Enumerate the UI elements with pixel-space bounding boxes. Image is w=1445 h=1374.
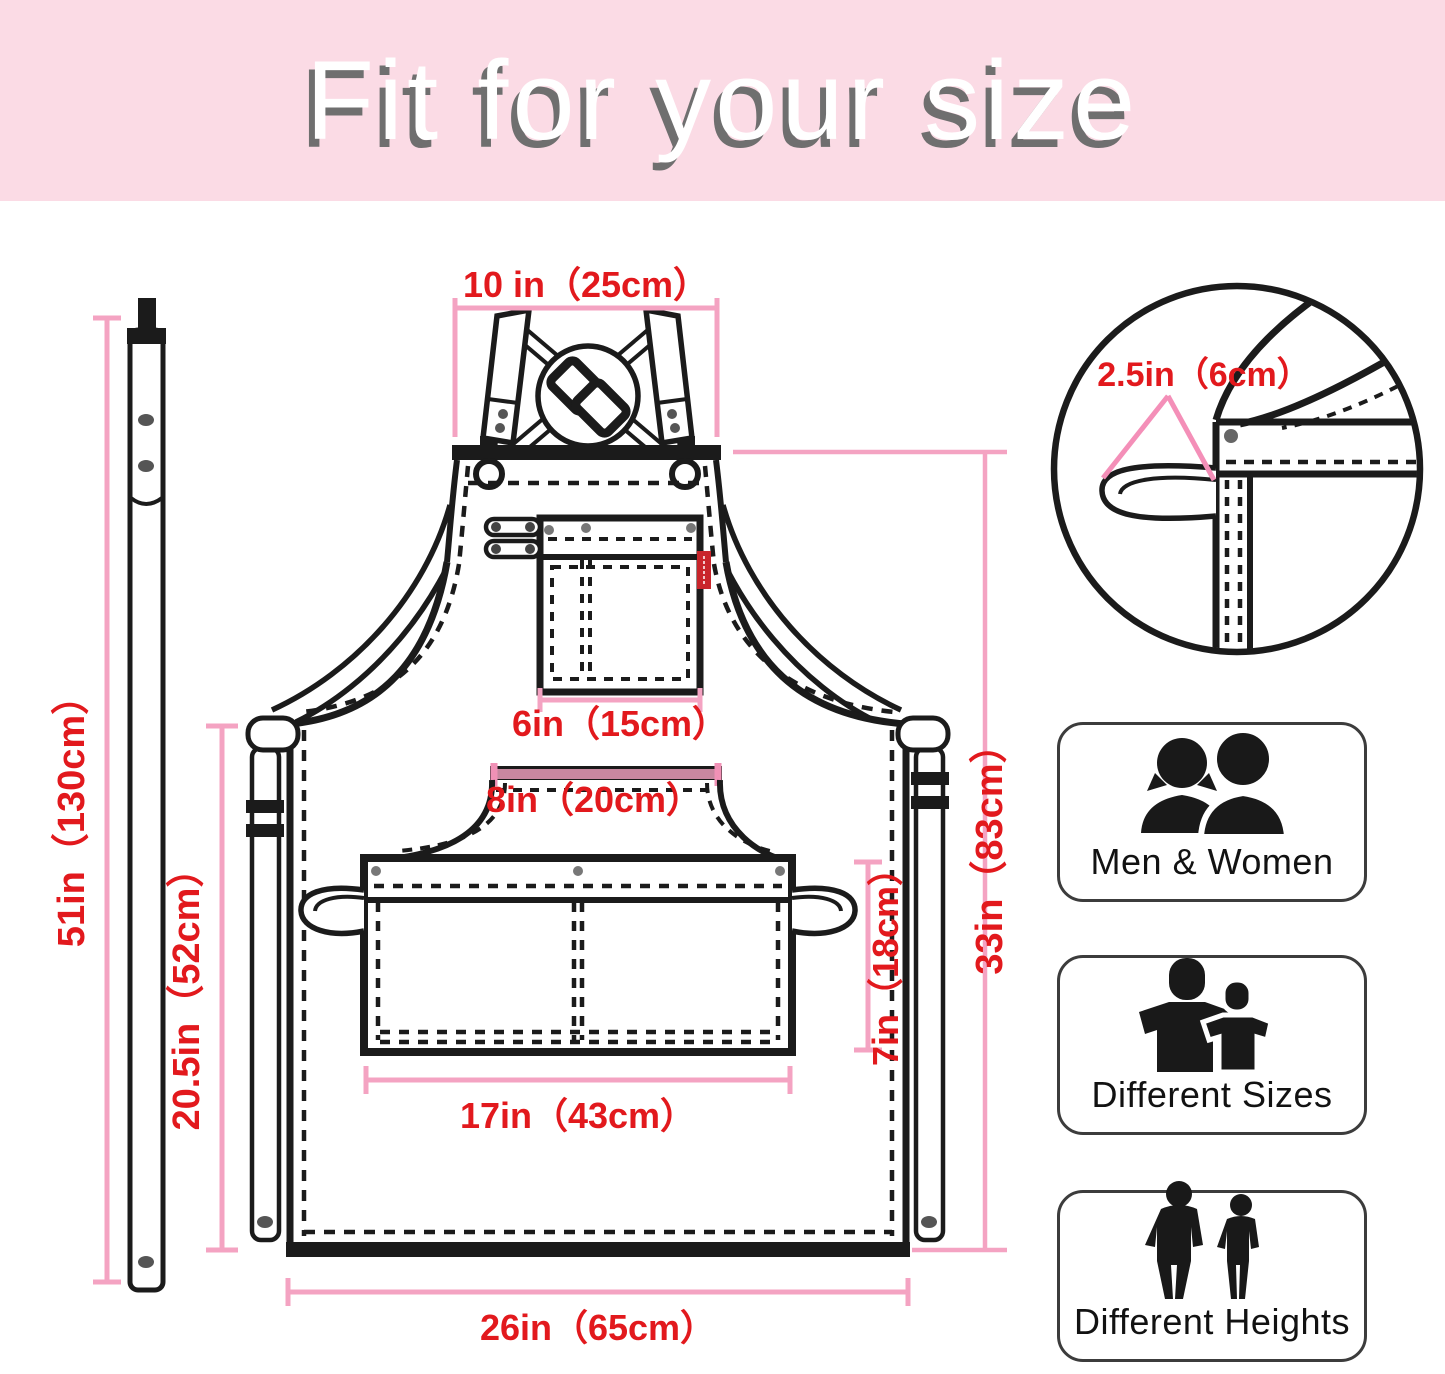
dim-label-chest-pocket-width: 6in（15cm）	[512, 703, 728, 744]
different-heights-icon	[1117, 1171, 1307, 1301]
men-women-icon	[1117, 719, 1307, 841]
dim-label-bottom-width: 26in（65cm）	[480, 1307, 716, 1348]
dim-line-20-5in	[206, 726, 238, 1250]
dim-label-strap-length: 51in（130cm）	[51, 677, 93, 947]
shoulder-harness	[480, 310, 695, 468]
apron-diagram: 51in（130cm） 20.5in（52cm）	[0, 0, 1445, 1374]
feature-label-men-women: Men & Women	[1091, 841, 1334, 899]
brand-tag	[697, 551, 711, 589]
dim-label-front-pocket-height: 7in（18cm）	[865, 850, 906, 1066]
dim-label-apron-height: 33in（83cm）	[969, 725, 1011, 974]
loop-detail-callout: 2.5in（6cm）	[1054, 286, 1425, 655]
dim-label-side-height: 20.5in（52cm）	[166, 850, 208, 1131]
feature-label-different-sizes: Different Sizes	[1092, 1074, 1333, 1132]
dim-label-waist-panel-width: 8in（20cm）	[486, 779, 702, 820]
dim-label-loop-width: 2.5in（6cm）	[1097, 355, 1311, 394]
different-sizes-icon	[1117, 948, 1307, 1074]
dim-line-51in	[93, 318, 121, 1282]
dim-line-26in	[288, 1278, 908, 1306]
neck-strap	[127, 298, 166, 1290]
dim-label-top-width: 10 in（25cm）	[463, 264, 709, 305]
feature-box-different-sizes: Different Sizes	[1057, 955, 1367, 1135]
dim-label-front-pocket-width: 17in（43cm）	[460, 1095, 696, 1136]
feature-box-men-women: Men & Women	[1057, 722, 1367, 902]
front-pocket	[301, 858, 855, 1052]
neck-strap-drawing: 51in（130cm）	[51, 298, 166, 1290]
feature-label-different-heights: Different Heights	[1074, 1301, 1350, 1359]
feature-box-different-heights: Different Heights	[1057, 1190, 1367, 1362]
infographic-page: Fit for your size 51in（130cm）	[0, 0, 1445, 1374]
